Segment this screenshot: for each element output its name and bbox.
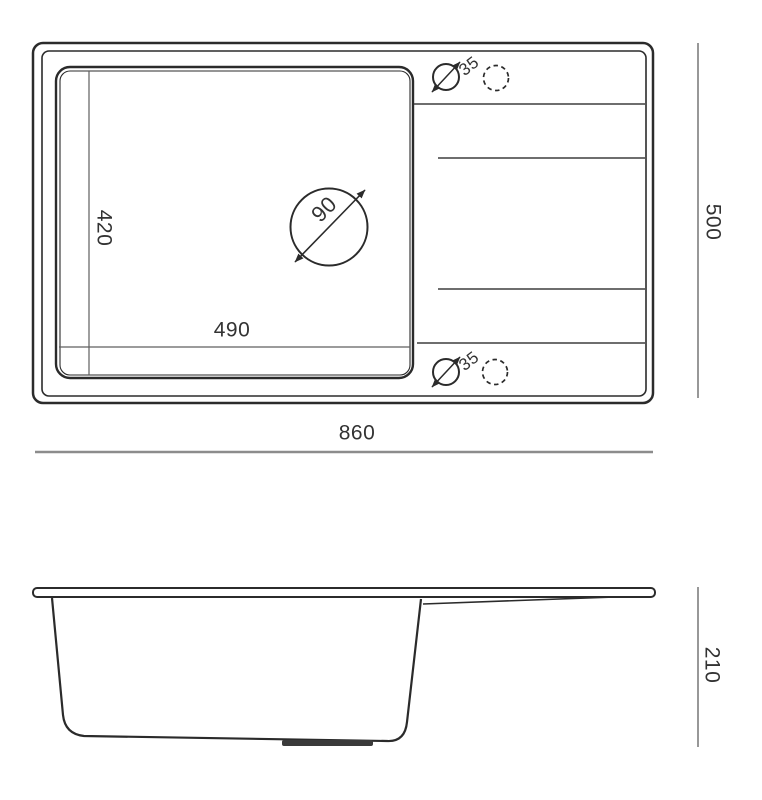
sink-technical-drawing: 420 490 90 35 35 (0, 0, 762, 800)
side-view-rim (33, 588, 655, 597)
side-view-bowl-profile (52, 598, 421, 741)
overall-width-label: 860 (339, 422, 376, 445)
side-view-drain-outlet (282, 740, 373, 746)
overall-depth-label: 500 (702, 204, 725, 241)
height-label: 210 (701, 647, 724, 684)
bowl-width-label: 490 (214, 319, 251, 342)
side-view-dimensions: 210 (698, 587, 724, 747)
drawing-svg: 420 490 90 35 35 (0, 0, 762, 800)
side-view (33, 588, 655, 746)
bowl-depth-label: 420 (93, 210, 116, 247)
top-view: 420 490 90 35 35 (33, 43, 653, 403)
